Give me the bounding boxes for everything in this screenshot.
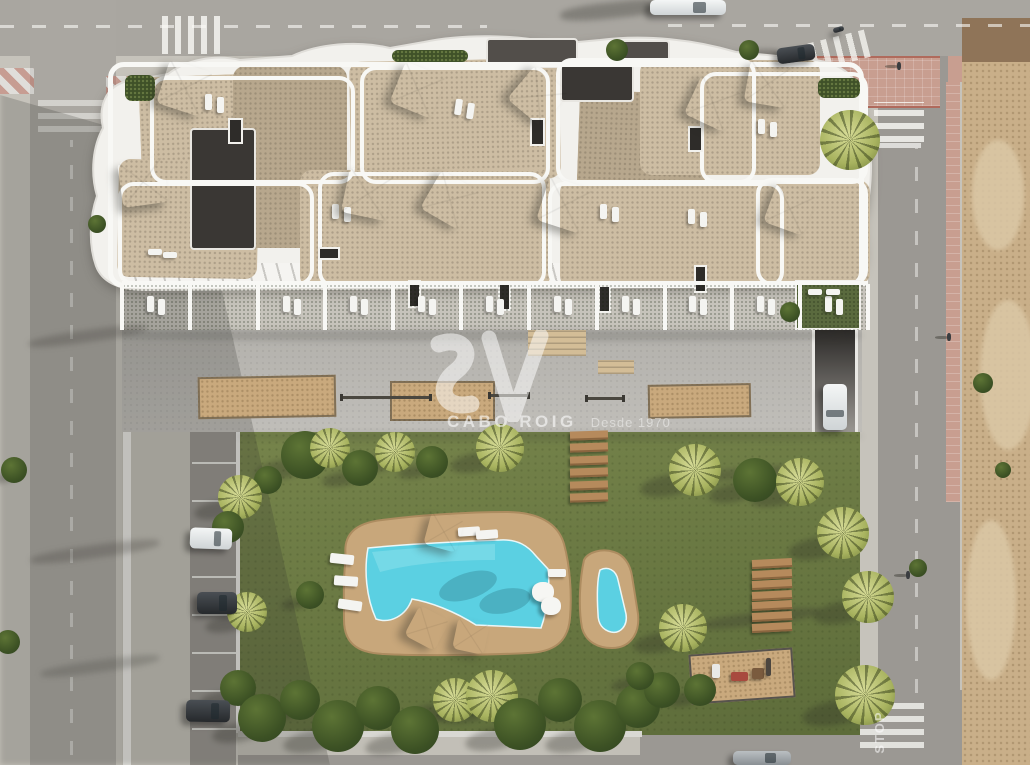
watermark-brand: CABO ROIG: [447, 412, 577, 432]
stop-road-marking: STOP: [872, 700, 892, 764]
watermark-tagline: Desde 1970: [591, 415, 671, 430]
aerial-residential-complex-render: CABO ROIG Desde 1970 STOP: [0, 0, 1030, 765]
overlay-layer: CABO ROIG Desde 1970 STOP: [0, 0, 1030, 765]
watermark-text: CABO ROIG Desde 1970: [447, 412, 671, 432]
watermark-logo: [415, 330, 555, 422]
